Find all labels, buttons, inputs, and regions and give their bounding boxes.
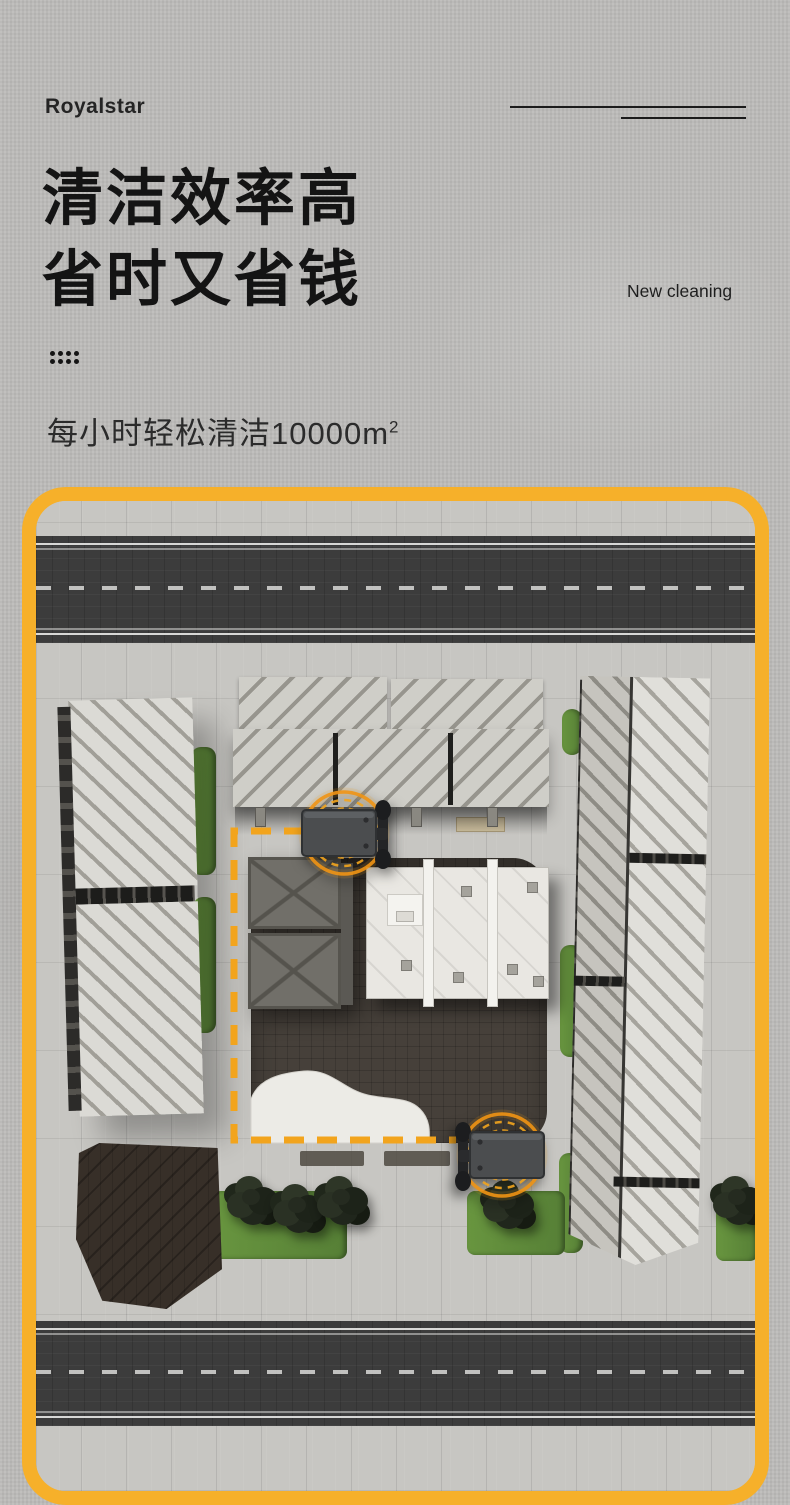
- building-left-roof-upper: [68, 697, 197, 888]
- road-edge-line: [36, 628, 755, 630]
- shed-box: [248, 933, 341, 1009]
- road-bottom: [36, 1321, 755, 1426]
- aerial-scene: [36, 501, 755, 1491]
- road-center-dashes: [36, 586, 755, 590]
- pavilion-beam: [487, 859, 498, 1007]
- canopy-post: [411, 807, 422, 827]
- subtitle: 每小时轻松清洁10000m2: [47, 408, 400, 453]
- building-left: [68, 697, 204, 1116]
- road-edge-line: [36, 1411, 755, 1413]
- pavilion-block: [453, 972, 464, 983]
- dot: [50, 359, 55, 364]
- dot: [74, 351, 79, 356]
- pavilion-block: [527, 882, 538, 893]
- tree: [704, 1169, 755, 1225]
- road-edge-line: [36, 1416, 755, 1418]
- decor-line-long: [510, 106, 746, 108]
- roof-slit: [448, 733, 453, 805]
- dot: [58, 359, 63, 364]
- cleaning-machine-1: [288, 777, 406, 889]
- road-center-dashes: [36, 1370, 755, 1374]
- road-edge-line: [36, 1328, 755, 1330]
- subtitle-text: 每小时轻松清洁10000m: [47, 416, 389, 451]
- building-brown: [76, 1143, 222, 1309]
- pavilion-block: [507, 964, 518, 975]
- subtitle-superscript: 2: [389, 418, 399, 437]
- building-right: [568, 676, 710, 1267]
- building-top-roof-b: [391, 679, 543, 729]
- dot: [50, 351, 55, 356]
- building-top-roof-a: [239, 677, 387, 729]
- sky-bridge: [613, 1177, 699, 1189]
- canopy-post: [487, 807, 498, 827]
- canopy-post: [255, 807, 266, 827]
- road-edge-line: [36, 548, 755, 550]
- title-line-1: 清洁效率高: [42, 164, 362, 232]
- dot: [66, 351, 71, 356]
- dot: [74, 359, 79, 364]
- pavilion-pad: [387, 894, 423, 926]
- pavilion-block: [533, 976, 544, 987]
- dot: [58, 351, 63, 356]
- brand-logo: Royalstar: [45, 95, 145, 119]
- promo-poster: Royalstar 清洁效率高省时又省钱 New cleaning 每小时轻松清…: [0, 0, 790, 1505]
- pavement-mat: [300, 1151, 364, 1166]
- pavilion-beam: [423, 859, 434, 1007]
- tree: [308, 1169, 372, 1225]
- illustration-frame: [22, 487, 769, 1505]
- road-edge-line: [36, 543, 755, 545]
- tagline-en: New cleaning: [627, 281, 732, 302]
- pavilion-block: [461, 886, 472, 897]
- building-left-roof-lower: [74, 901, 204, 1116]
- sky-bridge: [629, 853, 706, 865]
- road-top: [36, 536, 755, 643]
- cleaning-machine-2: [440, 1099, 558, 1211]
- decor-line-short: [621, 117, 746, 119]
- page-title: 清洁效率高省时又省钱: [42, 158, 362, 319]
- dot: [66, 359, 71, 364]
- road-edge-line: [36, 1333, 755, 1335]
- dots-grid-icon: [50, 351, 79, 364]
- road-edge-line: [36, 633, 755, 635]
- title-line-2: 省时又省钱: [42, 245, 362, 313]
- pavilion-block: [401, 960, 412, 971]
